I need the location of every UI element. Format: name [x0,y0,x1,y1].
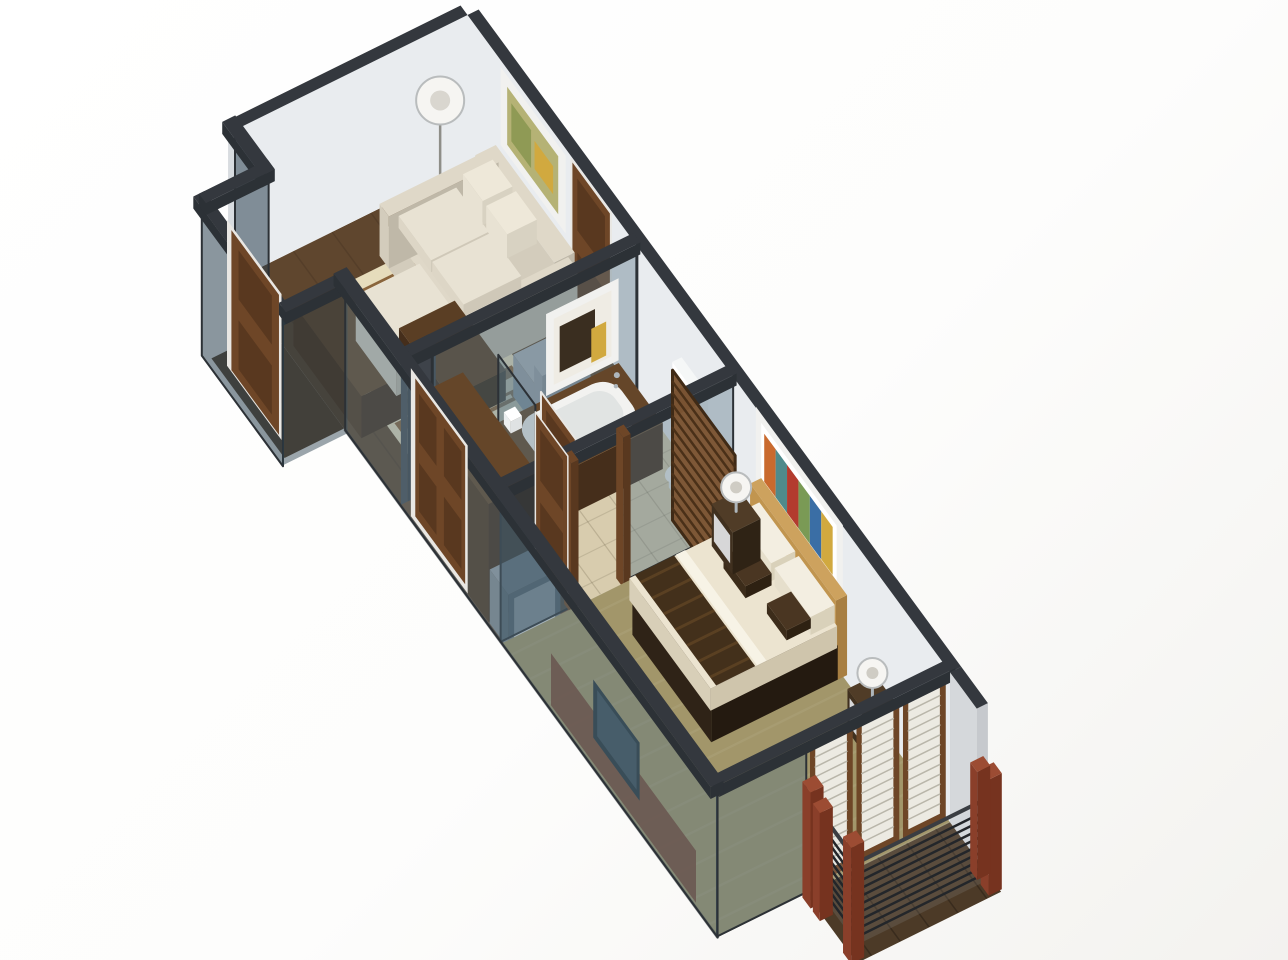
floor-plan-render [0,0,1288,960]
bedroom-door-frame-2 [616,425,630,588]
bathtub-faucet [614,372,620,378]
apartment-3d-floor-plan [0,0,1288,960]
balcony-door-louvers-3 [908,686,940,830]
bathtub-faucet-2 [614,384,618,388]
balcony-post-1b [813,797,833,921]
balcony-post-3b [970,756,990,880]
table-lamp-2-inner [866,667,878,679]
balcony-post-2 [843,830,864,960]
table-lamp-1-inner [730,481,742,493]
floor-lamp-shade-inner [430,90,450,110]
balcony-door-louvers-2 [862,709,894,853]
